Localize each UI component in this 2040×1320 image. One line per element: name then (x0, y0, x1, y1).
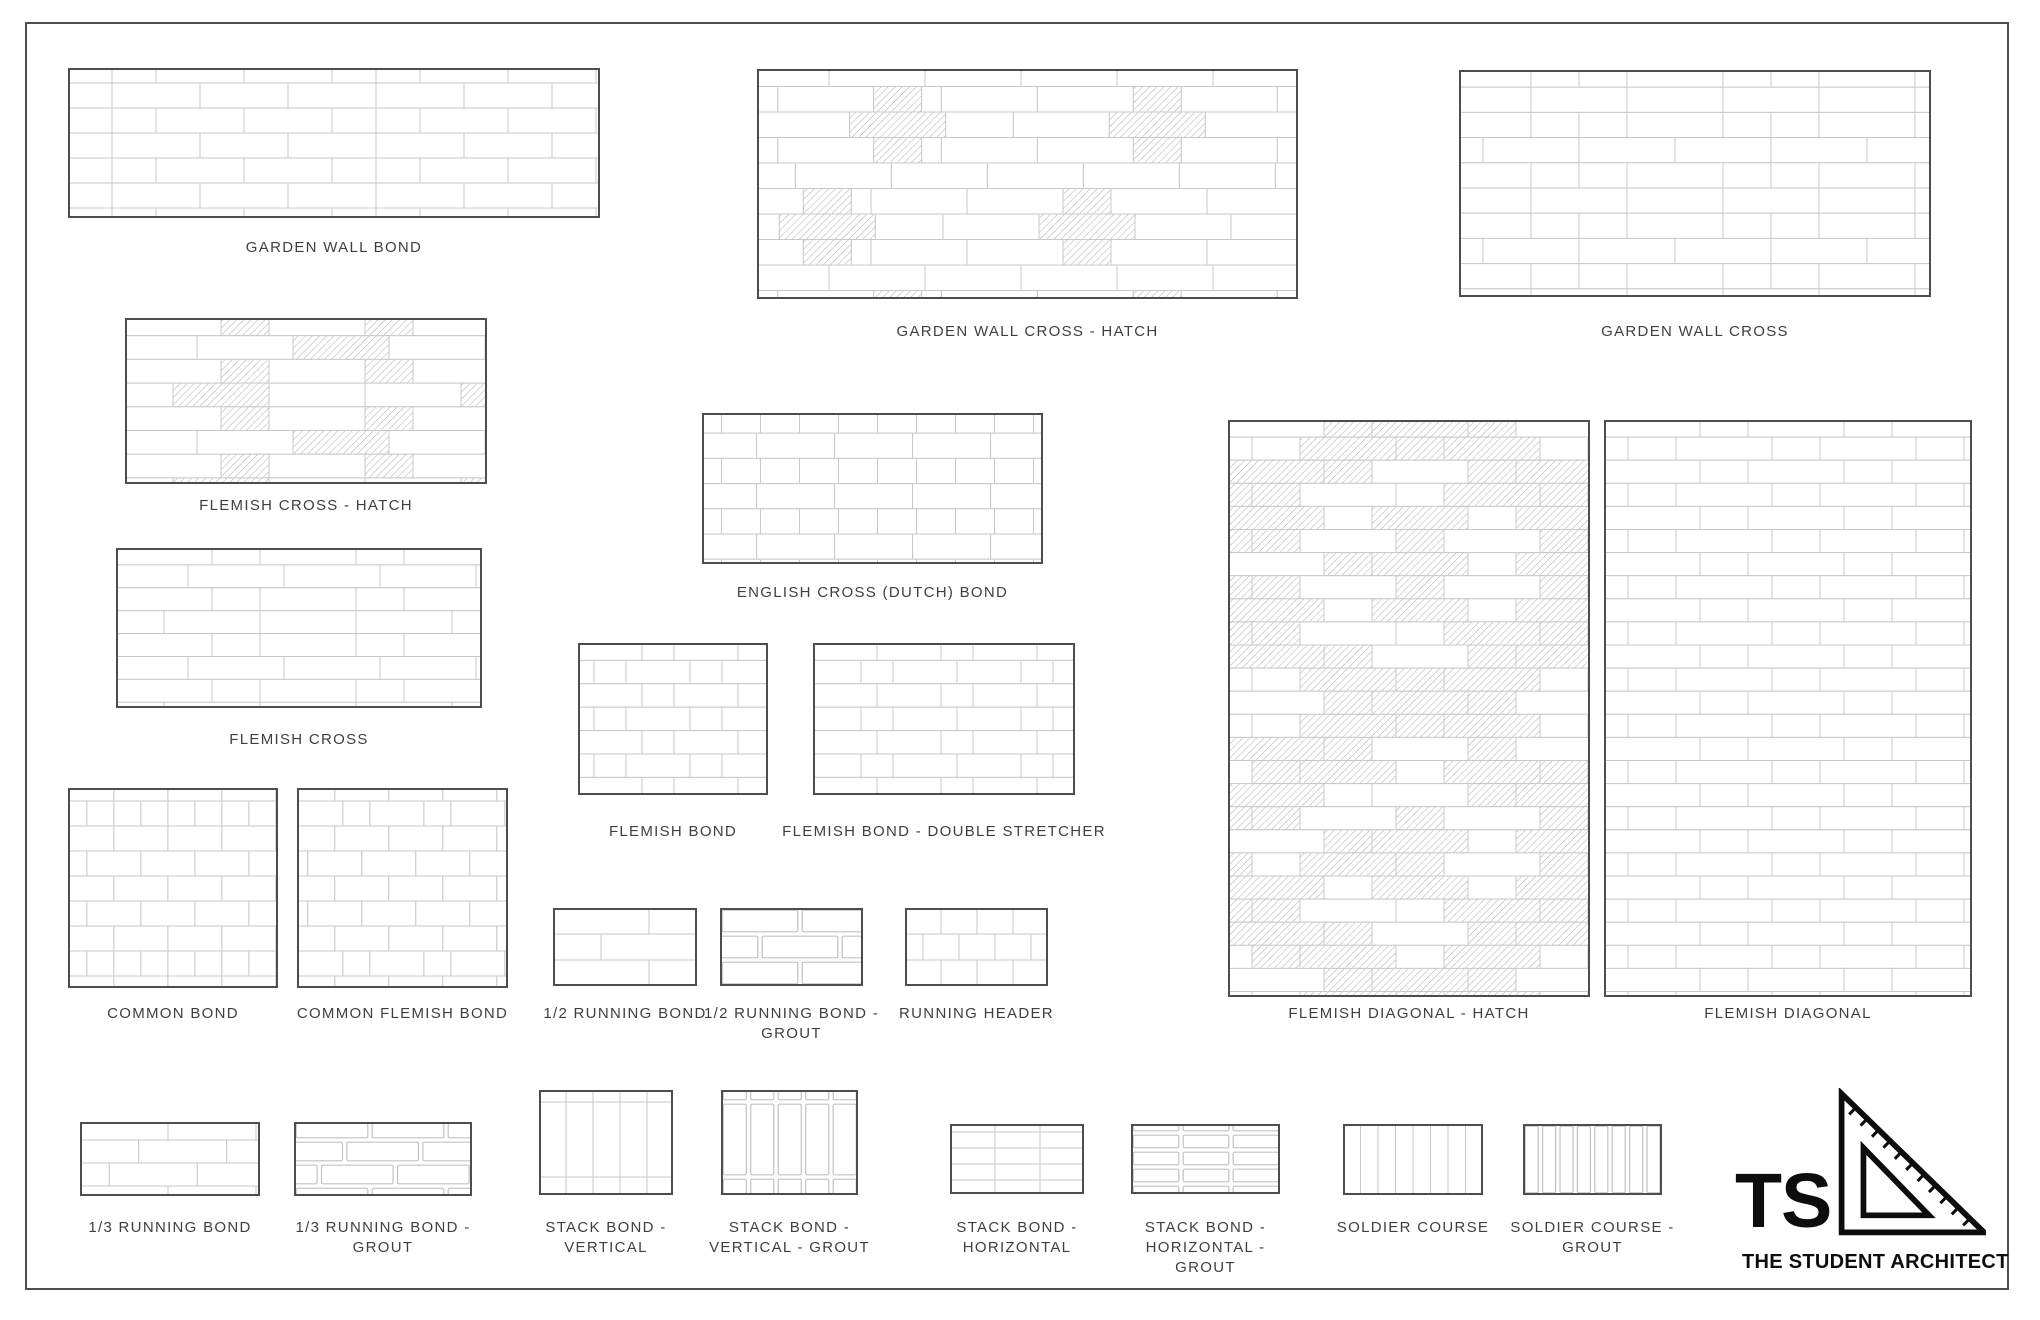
panel-english-cross: ENGLISH CROSS (DUTCH) BOND (702, 413, 1043, 564)
swatch-garden-wall-bond (68, 68, 600, 223)
panel-stack-bond-horizontal: STACK BOND - HORIZONTAL (950, 1124, 1084, 1194)
label-garden-wall-bond: GARDEN WALL BOND (164, 238, 504, 258)
swatch-garden-wall-cross (1459, 70, 1931, 302)
panel-common-bond: COMMON BOND (68, 788, 278, 988)
panel-stack-bond-vertical-grout: STACK BOND - VERTICAL - GROUT (721, 1090, 858, 1195)
set-square-triangle-icon (1834, 1088, 1986, 1240)
panel-garden-wall-bond: GARDEN WALL BOND (68, 68, 600, 218)
panel-flemish-bond-double: FLEMISH BOND - DOUBLE STRETCHER (813, 643, 1075, 795)
swatch-half-running-bond (553, 908, 697, 991)
swatch-third-running-bond-grout (294, 1122, 472, 1201)
label-garden-wall-cross-hatch: GARDEN WALL CROSS - HATCH (858, 322, 1198, 342)
brick-bond-reference-sheet: GARDEN WALL BOND GARDEN WALL CROSS - HAT… (0, 0, 2040, 1320)
panel-flemish-bond: FLEMISH BOND (578, 643, 768, 795)
panel-soldier-course-grout: SOLDIER COURSE - GROUT (1523, 1124, 1662, 1195)
panel-stack-bond-horizontal-grout: STACK BOND - HORIZONTAL - GROUT (1131, 1124, 1280, 1194)
logo-name: THE STUDENT ARCHITECT (1742, 1251, 2009, 1274)
swatch-soldier-course (1343, 1124, 1483, 1200)
panel-third-running-bond-grout: 1/3 RUNNING BOND - GROUT (294, 1122, 472, 1196)
swatch-flemish-diagonal (1604, 420, 1972, 1002)
panel-half-running-bond-grout: 1/2 RUNNING BOND - GROUT (720, 908, 863, 986)
swatch-english-cross (702, 413, 1043, 569)
panel-flemish-diagonal: FLEMISH DIAGONAL (1604, 420, 1972, 997)
swatch-third-running-bond (80, 1122, 260, 1201)
logo: TS THE STUDENT ARCHITECT (1725, 1080, 2015, 1290)
label-flemish-bond-double: FLEMISH BOND - DOUBLE STRETCHER (774, 822, 1114, 842)
panel-soldier-course: SOLDIER COURSE (1343, 1124, 1483, 1195)
panel-stack-bond-vertical: STACK BOND - VERTICAL (539, 1090, 673, 1195)
swatch-garden-wall-cross-hatch (757, 69, 1298, 304)
panel-garden-wall-cross: GARDEN WALL CROSS (1459, 70, 1931, 297)
label-flemish-cross: FLEMISH CROSS (129, 730, 469, 750)
label-english-cross: ENGLISH CROSS (DUTCH) BOND (703, 583, 1043, 603)
logo-monogram: TS (1735, 1163, 1831, 1240)
panel-flemish-diagonal-hatch: FLEMISH DIAGONAL - HATCH (1228, 420, 1590, 997)
swatch-flemish-cross (116, 548, 482, 713)
swatch-soldier-course-grout (1523, 1124, 1662, 1200)
label-flemish-diagonal: FLEMISH DIAGONAL (1618, 1004, 1958, 1024)
swatch-half-running-bond-grout (720, 908, 863, 991)
label-flemish-diagonal-hatch: FLEMISH DIAGONAL - HATCH (1239, 1004, 1579, 1024)
label-soldier-course-grout: SOLDIER COURSE - GROUT (1423, 1218, 1763, 1258)
swatch-common-bond (68, 788, 278, 993)
panel-flemish-cross: FLEMISH CROSS (116, 548, 482, 708)
label-running-header: RUNNING HEADER (807, 1004, 1147, 1024)
panel-half-running-bond: 1/2 RUNNING BOND (553, 908, 697, 986)
swatch-stack-bond-vertical (539, 1090, 673, 1200)
label-flemish-cross-hatch: FLEMISH CROSS - HATCH (136, 496, 476, 516)
panel-garden-wall-cross-hatch: GARDEN WALL CROSS - HATCH (757, 69, 1298, 299)
swatch-common-flemish-bond (297, 788, 508, 993)
swatch-flemish-cross-hatch (125, 318, 487, 489)
label-garden-wall-cross: GARDEN WALL CROSS (1525, 322, 1865, 342)
swatch-stack-bond-horizontal (950, 1124, 1084, 1199)
panel-common-flemish-bond: COMMON FLEMISH BOND (297, 788, 508, 988)
panel-running-header: RUNNING HEADER (905, 908, 1048, 986)
panel-flemish-cross-hatch: FLEMISH CROSS - HATCH (125, 318, 487, 484)
swatch-running-header (905, 908, 1048, 991)
swatch-flemish-diagonal-hatch (1228, 420, 1590, 1002)
swatch-flemish-bond-double (813, 643, 1075, 800)
swatch-stack-bond-horizontal-grout (1131, 1124, 1280, 1199)
swatch-stack-bond-vertical-grout (721, 1090, 858, 1200)
swatch-flemish-bond (578, 643, 768, 800)
panel-third-running-bond: 1/3 RUNNING BOND (80, 1122, 260, 1196)
